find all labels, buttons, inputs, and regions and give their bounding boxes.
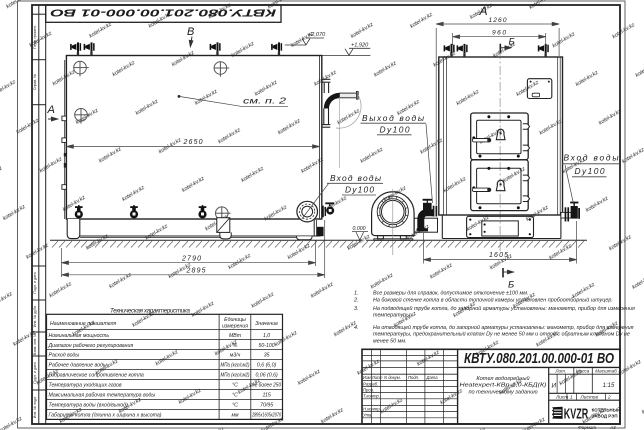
svg-text:Утв.: Утв. [363,413,373,418]
svg-text:температуры, предохранительный: температуры, предохранительный клапан Dу… [373,331,630,338]
svg-text:На боковой стенке котла в обла: На боковой стенке котла в области топочн… [373,297,613,304]
svg-text:Вход воды: Вход воды [564,152,619,162]
svg-text:1: 1 [570,394,573,400]
svg-text:Листов: Листов [580,394,599,400]
svg-text:Инв. № дубл.: Инв. № дубл. [33,305,37,327]
svg-text:И: И [552,383,557,390]
svg-text:2: 2 [607,394,611,400]
svg-text:по техническому заданию: по техническому заданию [468,390,538,396]
svg-text:КВТУ.080.201.00.000-01 ВО: КВТУ.080.201.00.000-01 ВО [464,351,615,367]
svg-text:измерения: измерения [222,323,248,329]
svg-text:Выход воды: Выход воды [362,113,424,123]
svg-text:Температура воды (вход/выход): Температура воды (вход/выход) [49,403,128,409]
svg-text:КОТЕЛЬНЫЙ: КОТЕЛЬНЫЙ [592,407,621,412]
svg-text:Инв. № подл.: Инв. № подл. [33,396,37,418]
svg-text:Масса: Масса [576,368,590,373]
svg-text:1605: 1605 [489,252,508,259]
svg-text:Dy100: Dy100 [575,166,605,176]
svg-text:N докум.: N докум. [384,375,401,380]
svg-text:Номинальная мощность: Номинальная мощность [49,333,110,339]
svg-text:115: 115 [262,393,270,399]
svg-text:Б: Б [509,37,515,48]
svg-text:1:15: 1:15 [603,383,615,389]
svg-text:температуры.: температуры. [373,313,412,319]
svg-text:А: А [479,4,488,18]
svg-text:Все размеры для справок, допус: Все размеры для справок, допустимое откл… [373,290,528,296]
svg-text:Значение: Значение [255,321,278,327]
svg-text:35: 35 [264,353,270,359]
svg-text:м3/ч: м3/ч [230,353,241,359]
svg-text:Гидравлическое сопротивление к: Гидравлическое сопротивление котла [49,373,144,379]
svg-text:°С: °С [232,383,238,389]
svg-text:Подп. и дата: Подп. и дата [33,362,37,383]
svg-text:Т.контр.: Т.контр. [363,394,380,399]
svg-text:Диапазон рабочего регулировани: Диапазон рабочего регулирования [48,343,134,349]
svg-text:Dy100: Dy100 [380,124,410,134]
svg-text:Рабочее давление воды: Рабочее давление воды [49,363,107,369]
svg-text:МВт: МВт [229,333,242,339]
svg-text:°С: °С [232,403,238,409]
svg-text:Перв. примен.: Перв. примен. [33,25,37,49]
svg-text:Подп.: Подп. [408,375,419,380]
svg-text:1,0: 1,0 [263,333,270,339]
svg-text:Взам. инв. №: Взам. инв. № [33,333,37,355]
svg-text:0.000: 0.000 [353,226,366,232]
svg-text:менее 50 мм.: менее 50 мм. [373,338,407,344]
svg-text:Дата: Дата [426,375,439,380]
svg-text:На отводящей трубе котла, до з: На отводящей трубе котла, до запорной ар… [373,324,634,331]
svg-text:+2,070: +2,070 [308,32,326,38]
svg-text:Н.контр.: Н.контр. [363,406,381,411]
svg-text:Габариты котла (длинна х ширин: Габариты котла (длинна х ширина х высота… [49,413,162,419]
svg-text:Подп. и дата: Подп. и дата [33,272,37,293]
svg-text:Температура уходящих газов: Температура уходящих газов [49,383,122,389]
svg-text:°С: °С [232,393,238,399]
svg-text:Наименование показателя: Наименование показателя [50,321,116,327]
svg-text:А: А [47,104,55,116]
svg-text:50-100: 50-100 [259,343,275,349]
svg-text:КВТУ.080.201.00.000-01 ВО: КВТУ.080.201.00.000-01 ВО [50,7,277,18]
svg-text:см. п. 2: см. п. 2 [243,97,287,106]
svg-text:не более 250: не более 250 [252,383,281,389]
svg-text:мм: мм [231,413,239,419]
svg-text:2895х1605х2070: 2895х1605х2070 [251,413,281,419]
svg-text:Вход воды: Вход воды [330,173,381,183]
svg-text:2.: 2. [353,298,359,304]
svg-text:1.: 1. [354,290,359,296]
svg-text:Лист: Лист [555,394,568,400]
svg-text:Лит.: Лит. [554,368,566,373]
svg-text:На подводящей трубе котла, д: На подводящей трубе котла, до запорной а… [373,305,635,312]
svg-text:0,06 (0,6): 0,06 (0,6) [255,373,277,379]
svg-text:Расход воды: Расход воды [49,353,80,359]
svg-text:ЗАВОД РЭП: ЗАВОД РЭП [592,413,618,418]
svg-text:0,6 (6,0): 0,6 (6,0) [257,363,277,369]
svg-text:Формат: Формат [578,425,596,430]
svg-text:KVZR: KVZR [564,406,589,423]
svg-text:А3: А3 [609,425,616,430]
svg-text:Разраб.: Разраб. [363,381,378,386]
svg-text:960: 960 [492,29,506,36]
svg-text:Heatexpert-КВр-1,0-КБД(К): Heatexpert-КВр-1,0-КБД(К) [460,383,547,389]
svg-text:Пров.: Пров. [363,387,374,392]
svg-text:МПа (кгс/см2): МПа (кгс/см2) [221,373,250,379]
svg-text:3.: 3. [354,306,359,312]
svg-text:%: % [233,343,238,349]
svg-text:4.: 4. [354,325,359,331]
svg-text:Dy100: Dy100 [345,185,374,195]
svg-text:В: В [187,26,194,38]
svg-text:МПа (кгс/см2): МПа (кгс/см2) [221,363,250,369]
svg-text:Б: Б [508,280,514,291]
svg-text:Единицы: Единицы [224,317,246,323]
svg-text:Максимальная рабочая температу: Максимальная рабочая температура воды [49,393,156,399]
svg-text:Котел водогрейный: Котел водогрейный [476,375,529,382]
svg-text:Справ. №: Справ. № [33,74,37,90]
svg-text:Техническая характеристика: Техническая характеристика [110,308,191,315]
svg-text:Изм Лист: Изм Лист [363,375,383,380]
svg-text:70/95: 70/95 [260,403,273,409]
svg-text:1260: 1260 [489,17,507,24]
svg-text:+1,920: +1,920 [351,43,369,49]
svg-text:Масштаб: Масштаб [595,368,617,373]
